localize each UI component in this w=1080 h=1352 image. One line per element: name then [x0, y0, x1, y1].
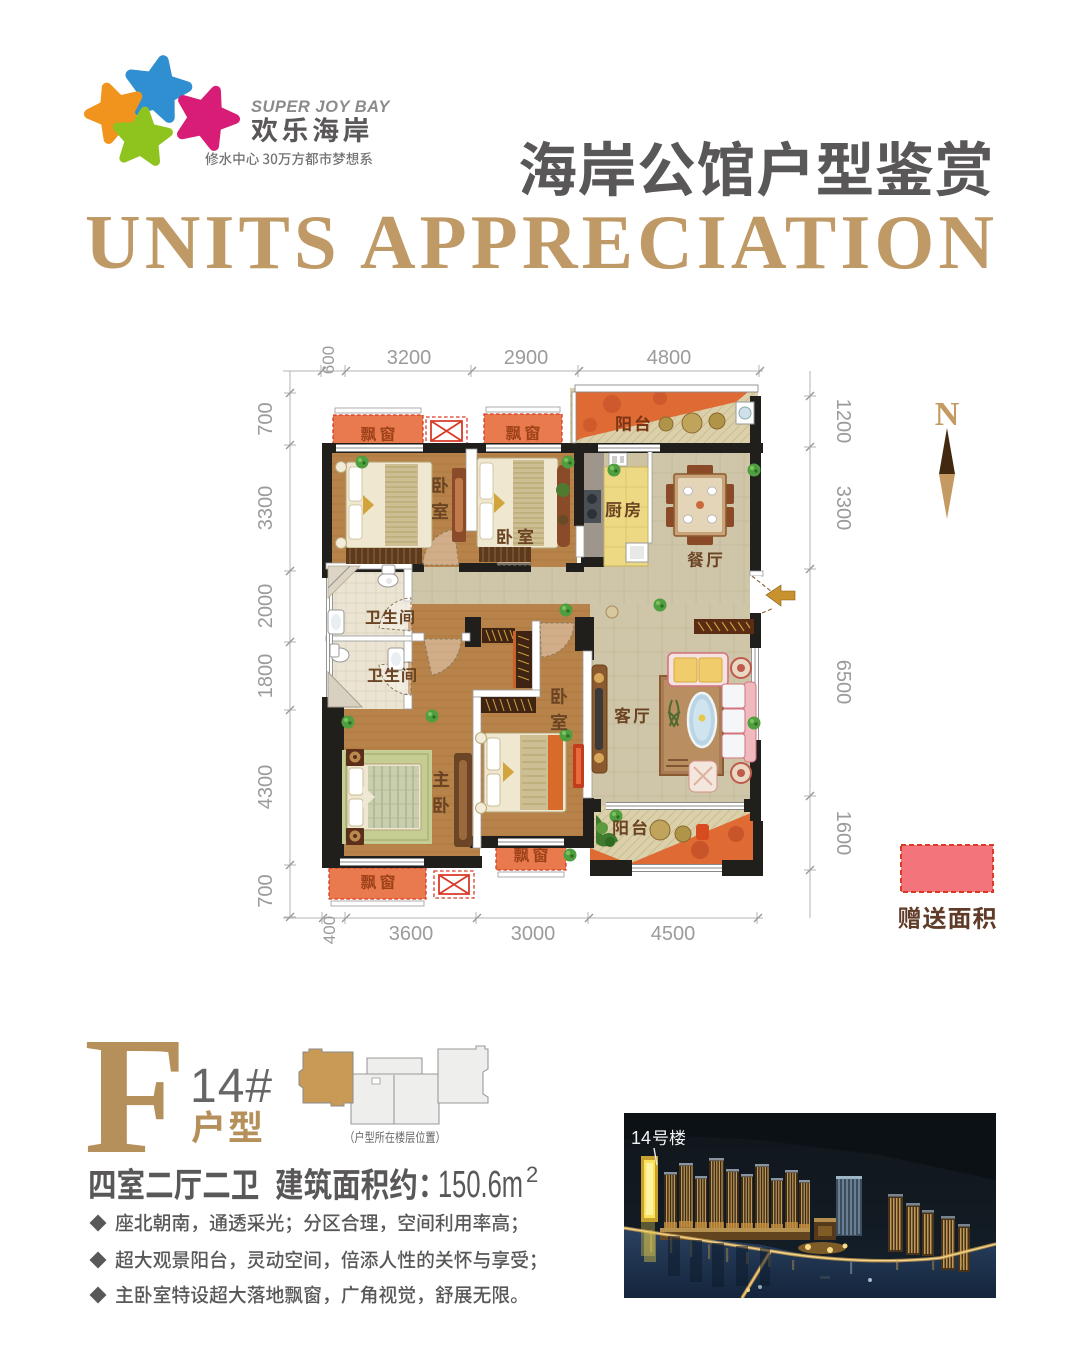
svg-text:600: 600: [319, 346, 338, 374]
svg-text:N: N: [935, 396, 960, 433]
svg-text:1600: 1600: [832, 811, 854, 856]
svg-text:4300: 4300: [255, 765, 277, 810]
svg-text:1800: 1800: [255, 654, 277, 699]
svg-text:700: 700: [255, 402, 277, 435]
svg-text:3000: 3000: [511, 923, 556, 945]
svg-text:2: 2: [526, 1162, 538, 1187]
svg-text:SUPER JOY BAY: SUPER JOY BAY: [251, 98, 391, 116]
svg-text:2900: 2900: [504, 347, 549, 369]
svg-text:400: 400: [320, 916, 339, 944]
svg-text:3300: 3300: [832, 486, 854, 531]
svg-text:3300: 3300: [255, 486, 277, 531]
svg-text:150.6m: 150.6m: [438, 1164, 523, 1206]
svg-text:14#: 14#: [190, 1060, 273, 1113]
svg-text:UNITS APPRECIATION: UNITS APPRECIATION: [85, 199, 995, 285]
svg-text:6500: 6500: [832, 660, 854, 705]
svg-text:3600: 3600: [389, 923, 434, 945]
svg-text:700: 700: [255, 874, 277, 907]
svg-text:14: 14: [631, 1128, 651, 1148]
svg-text:1200: 1200: [832, 399, 854, 444]
svg-text:F: F: [84, 1003, 187, 1189]
svg-text:4500: 4500: [651, 923, 696, 945]
svg-text:3200: 3200: [387, 347, 432, 369]
svg-text:2000: 2000: [255, 584, 277, 629]
svg-text:4800: 4800: [647, 347, 692, 369]
